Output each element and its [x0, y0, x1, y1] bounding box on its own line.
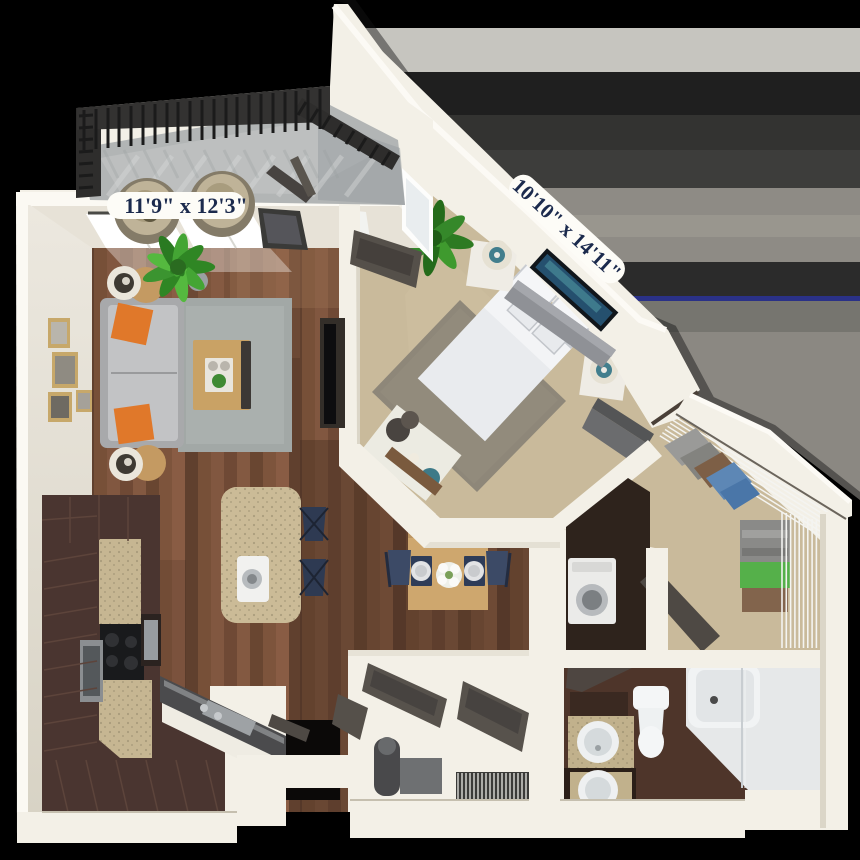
svg-text:11'9" x 12'3": 11'9" x 12'3"	[124, 193, 247, 218]
